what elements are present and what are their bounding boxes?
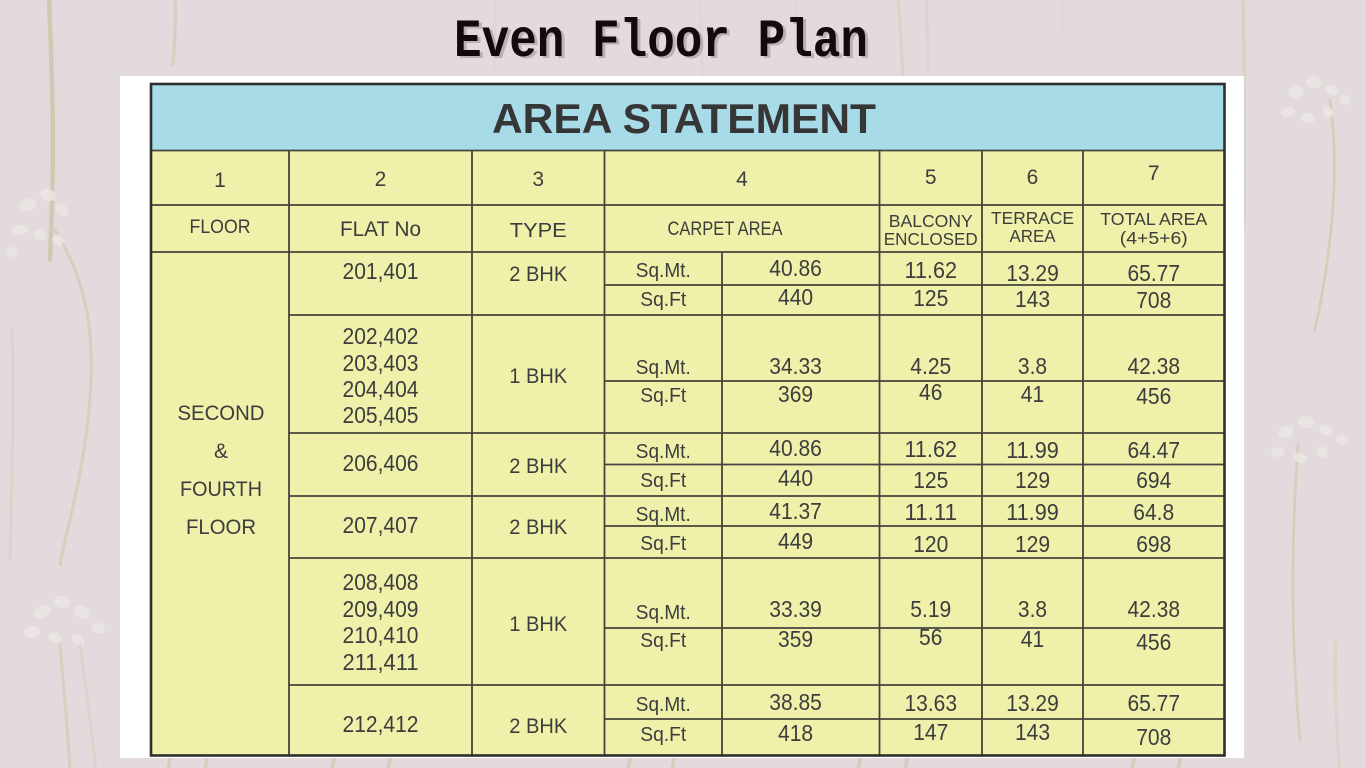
svg-text:41.37: 41.37 (769, 498, 822, 524)
svg-text:TYPE: TYPE (510, 220, 567, 242)
svg-text:11.62: 11.62 (904, 436, 957, 462)
svg-text:1 BHK: 1 BHK (509, 365, 567, 388)
svg-text:143: 143 (1015, 286, 1050, 312)
svg-text:41: 41 (1021, 626, 1044, 652)
svg-text:64.8: 64.8 (1133, 499, 1174, 525)
svg-text:40.86: 40.86 (769, 255, 822, 281)
svg-text:Sq.Ft: Sq.Ft (640, 384, 686, 407)
svg-text:ENCLOSED: ENCLOSED (884, 229, 978, 249)
svg-text:209,409: 209,409 (343, 596, 419, 622)
svg-text:205,405: 205,405 (343, 402, 419, 428)
svg-text:125: 125 (913, 467, 948, 493)
svg-text:Sq.Mt.: Sq.Mt. (636, 503, 691, 526)
svg-text:3: 3 (532, 168, 544, 191)
svg-text:206,406: 206,406 (343, 450, 419, 476)
svg-text:11.11: 11.11 (904, 499, 957, 525)
svg-text:147: 147 (913, 719, 948, 745)
svg-text:7: 7 (1148, 162, 1160, 185)
svg-text:2: 2 (375, 168, 387, 191)
svg-text:708: 708 (1136, 287, 1171, 313)
svg-text:456: 456 (1136, 629, 1171, 655)
svg-text:Sq.Ft: Sq.Ft (640, 288, 686, 311)
svg-text:Even Floor Plan: Even Floor Plan (454, 12, 868, 73)
svg-text:5.19: 5.19 (910, 596, 951, 622)
svg-text:Sq.Mt.: Sq.Mt. (636, 693, 691, 716)
svg-text:Sq.Mt.: Sq.Mt. (636, 440, 691, 463)
svg-text:208,408: 208,408 (343, 569, 419, 595)
svg-text:456: 456 (1136, 383, 1171, 409)
svg-text:3.8: 3.8 (1018, 596, 1047, 622)
svg-text:201,401: 201,401 (343, 258, 419, 284)
svg-text:65.77: 65.77 (1127, 260, 1180, 286)
svg-text:FOURTH: FOURTH (180, 478, 262, 501)
svg-text:5: 5 (925, 166, 937, 189)
svg-text:4: 4 (736, 168, 748, 191)
svg-text:3.8: 3.8 (1018, 353, 1047, 379)
svg-text:11.99: 11.99 (1006, 437, 1059, 463)
svg-text:38.85: 38.85 (769, 689, 822, 715)
svg-text:TERRACE: TERRACE (991, 208, 1074, 228)
svg-text:Sq.Ft: Sq.Ft (640, 469, 686, 492)
svg-text:125: 125 (913, 285, 948, 311)
svg-text:2 BHK: 2 BHK (509, 516, 567, 539)
svg-text:Sq.Mt.: Sq.Mt. (636, 356, 691, 379)
svg-text:34.33: 34.33 (769, 353, 822, 379)
svg-text:FLOOR: FLOOR (190, 217, 251, 238)
svg-text:11.99: 11.99 (1006, 499, 1059, 525)
svg-text:210,410: 210,410 (343, 622, 419, 648)
svg-text:698: 698 (1136, 531, 1171, 557)
svg-text:120: 120 (913, 531, 948, 557)
svg-text:(4+5+6): (4+5+6) (1120, 228, 1188, 248)
svg-text:33.39: 33.39 (769, 596, 822, 622)
svg-text:42.38: 42.38 (1127, 353, 1180, 379)
svg-text:CARPET AREA: CARPET AREA (668, 219, 783, 240)
svg-text:204,404: 204,404 (343, 376, 419, 402)
svg-text:65.77: 65.77 (1127, 690, 1180, 716)
svg-text:64.47: 64.47 (1127, 437, 1180, 463)
svg-text:203,403: 203,403 (343, 350, 419, 376)
svg-text:AREA: AREA (1010, 226, 1056, 246)
svg-text:708: 708 (1136, 724, 1171, 750)
svg-text:418: 418 (778, 720, 813, 746)
svg-text:369: 369 (778, 381, 813, 407)
svg-text:TOTAL AREA: TOTAL AREA (1100, 209, 1207, 229)
svg-text:56: 56 (919, 624, 942, 650)
svg-text:1 BHK: 1 BHK (509, 613, 567, 636)
svg-text:FLAT No: FLAT No (340, 218, 421, 241)
svg-text:440: 440 (778, 284, 813, 310)
svg-text:AREA STATEMENT: AREA STATEMENT (492, 95, 876, 142)
svg-text:40.86: 40.86 (769, 435, 822, 461)
svg-text:Sq.Mt.: Sq.Mt. (636, 601, 691, 624)
svg-text:Sq.Ft: Sq.Ft (640, 723, 686, 746)
svg-text:359: 359 (778, 626, 813, 652)
svg-text:11.62: 11.62 (904, 257, 957, 283)
svg-text:13.63: 13.63 (904, 690, 957, 716)
svg-text:BALCONY: BALCONY (889, 211, 973, 231)
svg-text:202,402: 202,402 (343, 323, 419, 349)
svg-text:13.29: 13.29 (1006, 260, 1059, 286)
svg-text:143: 143 (1015, 719, 1050, 745)
svg-text:42.38: 42.38 (1127, 596, 1180, 622)
svg-text:1: 1 (214, 169, 226, 192)
svg-text:440: 440 (778, 465, 813, 491)
svg-text:4.25: 4.25 (910, 353, 951, 379)
svg-text:13.29: 13.29 (1006, 690, 1059, 716)
svg-text:41: 41 (1021, 381, 1044, 407)
svg-text:6: 6 (1027, 166, 1039, 189)
svg-text:207,407: 207,407 (343, 512, 419, 538)
svg-text:211,411: 211,411 (343, 649, 419, 675)
svg-text:Sq.Ft: Sq.Ft (640, 532, 686, 555)
svg-text:2 BHK: 2 BHK (509, 263, 567, 286)
svg-text:Sq.Ft: Sq.Ft (640, 629, 686, 652)
svg-text:694: 694 (1136, 467, 1171, 493)
svg-text:2 BHK: 2 BHK (509, 455, 567, 478)
svg-text:449: 449 (778, 528, 813, 554)
svg-text:129: 129 (1015, 531, 1050, 557)
svg-text:&: & (214, 440, 228, 463)
svg-text:FLOOR: FLOOR (186, 516, 256, 539)
svg-text:46: 46 (919, 379, 942, 405)
svg-text:129: 129 (1015, 467, 1050, 493)
svg-text:2 BHK: 2 BHK (509, 715, 567, 738)
svg-text:SECOND: SECOND (178, 402, 265, 425)
svg-text:212,412: 212,412 (343, 711, 419, 737)
svg-text:Sq.Mt.: Sq.Mt. (636, 259, 691, 282)
